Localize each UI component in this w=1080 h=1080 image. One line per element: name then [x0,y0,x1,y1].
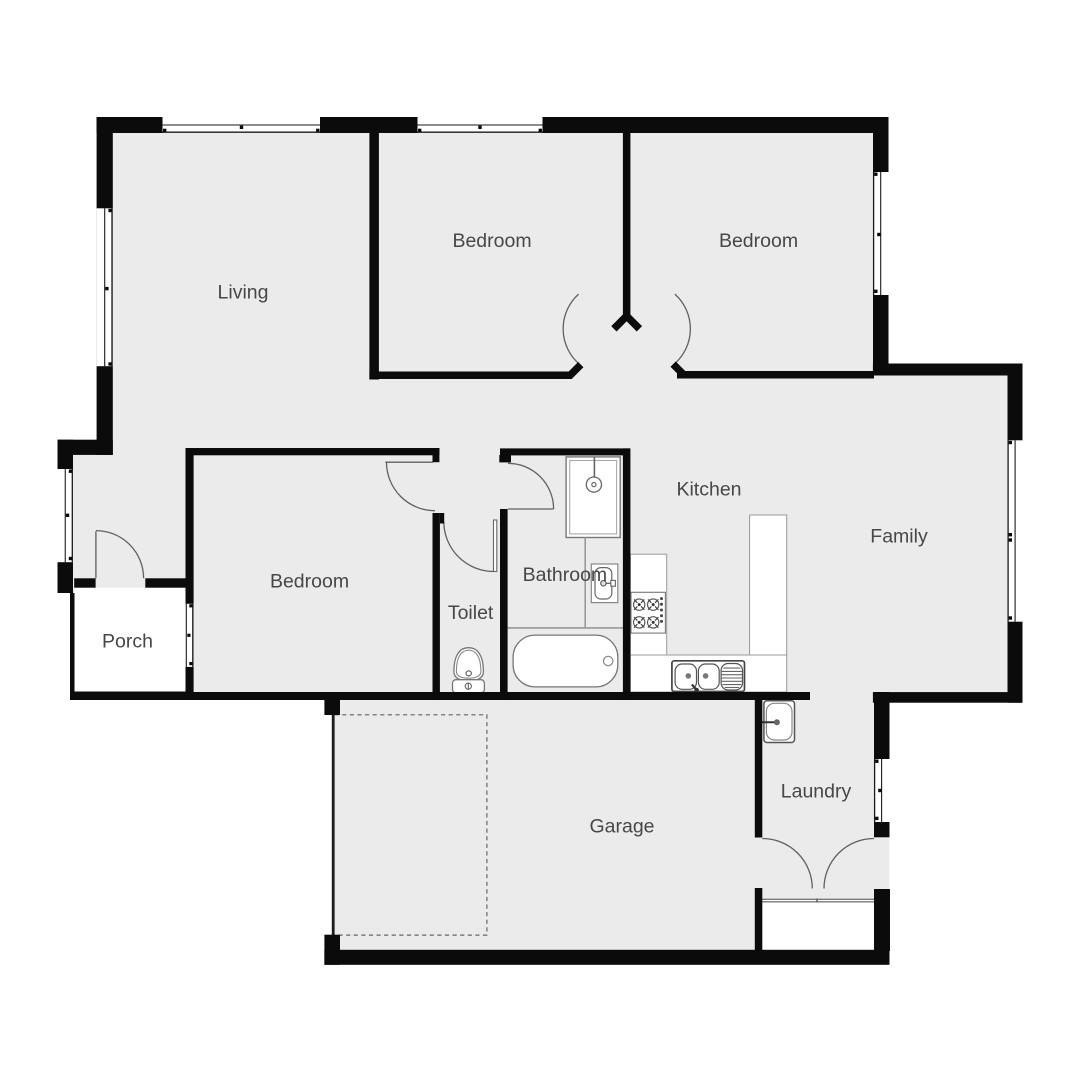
svg-text:Porch: Porch [102,631,153,653]
svg-text:Toilet: Toilet [448,602,494,624]
svg-text:Bathroom: Bathroom [523,564,608,586]
svg-text:Kitchen: Kitchen [676,479,741,501]
svg-text:Laundry: Laundry [781,781,852,803]
svg-text:Family: Family [870,525,928,547]
svg-text:Living: Living [218,282,269,304]
svg-text:Garage: Garage [589,816,654,838]
svg-text:Bedroom: Bedroom [270,571,349,593]
svg-text:Bedroom: Bedroom [452,230,531,252]
svg-text:Bedroom: Bedroom [719,230,798,252]
